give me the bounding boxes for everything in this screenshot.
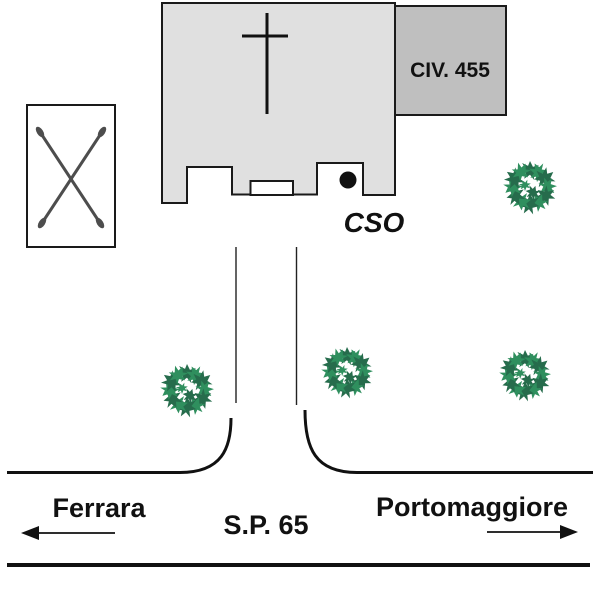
driveway <box>236 247 297 405</box>
destination-right-label: Portomaggiore <box>376 492 568 522</box>
road <box>7 410 593 565</box>
road-name-label: S.P. 65 <box>223 510 308 540</box>
tree-icon <box>158 362 217 419</box>
tree-icon <box>497 348 554 403</box>
map-canvas: CIV. 455 CSO Ferrara S.P. 65 Portomaggio… <box>0 0 600 600</box>
arrow-right-icon <box>487 525 578 539</box>
sketch-map-svg: CIV. 455 CSO Ferrara S.P. 65 Portomaggio… <box>0 0 600 600</box>
tree-icon <box>501 159 560 216</box>
church-building <box>162 3 395 203</box>
civ-number-label: CIV. 455 <box>410 59 490 82</box>
cso-label: CSO <box>344 207 405 238</box>
trees-layer <box>158 159 560 419</box>
dot-marker-icon <box>340 172 357 189</box>
church-porch <box>251 181 294 195</box>
arrow-left-icon <box>21 526 115 540</box>
crossed-poles-icon <box>27 105 115 247</box>
tree-icon <box>319 345 376 400</box>
destination-left-label: Ferrara <box>52 493 146 523</box>
